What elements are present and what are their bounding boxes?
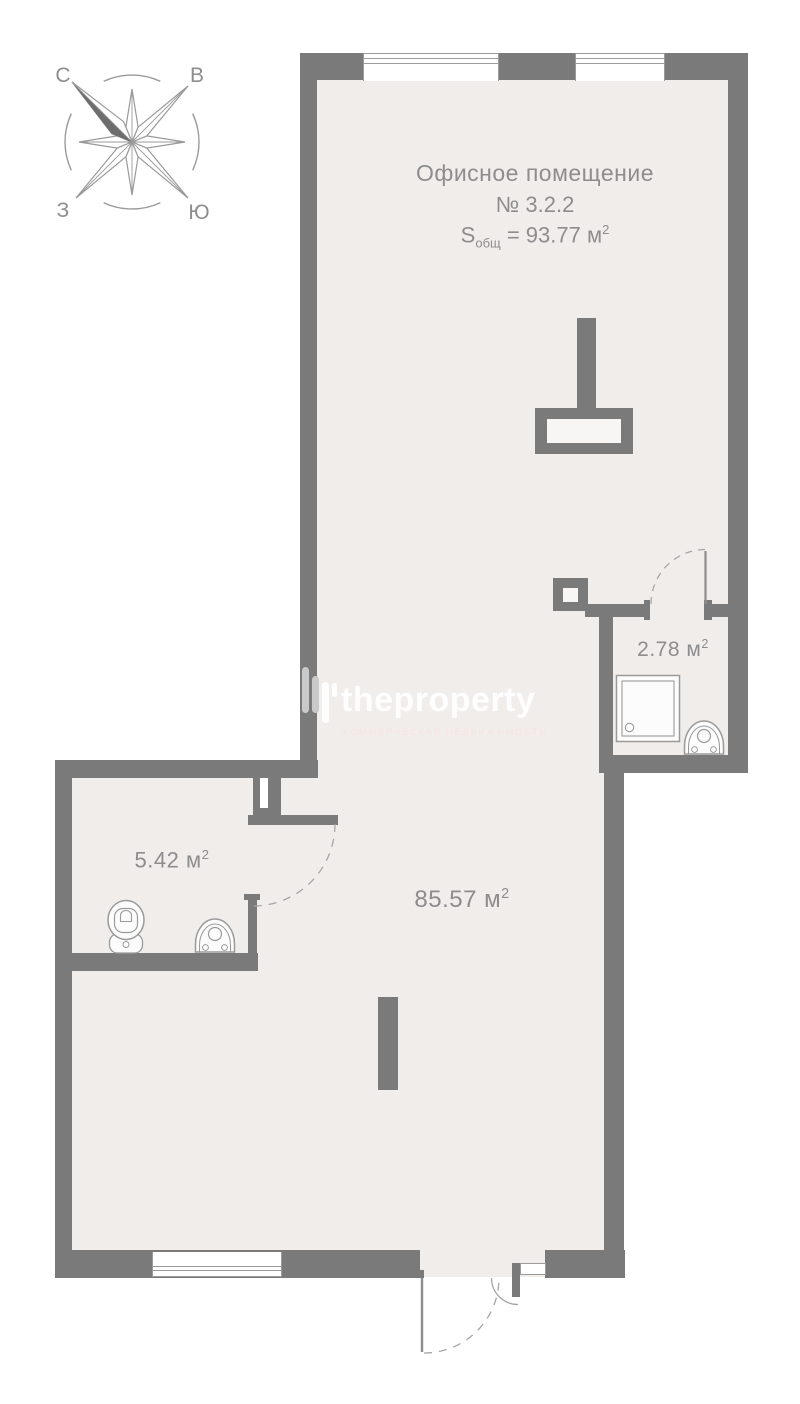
compass-spines [72,82,188,198]
wall-shower-room-top-b [712,604,728,617]
door-swing-entrance-main [424,1278,499,1353]
pilaster [378,997,398,1090]
compass-label-west: З [57,199,70,222]
room-label-shower: 2.78 м2 [613,637,733,662]
floorplan-canvas: С В З Ю [0,0,800,1404]
shaft-hollow-rect [535,408,633,454]
plan-total-area: Sобщ = 93.77 м2 [385,222,685,251]
compass-label-south: Ю [188,201,209,224]
wall-shower-room-left [599,604,613,755]
room-label-wc-sup: 2 [202,847,210,862]
plan-number: № 3.2.2 [385,192,685,218]
room-label-wc: 5.42 м2 [110,847,234,873]
logo-apostrophe [332,683,337,697]
area-s-sup: 2 [602,222,609,237]
wall-wc-bottom [55,953,258,971]
plan-title: Офисное помещение № 3.2.2 Sобщ = 93.77 м… [385,160,685,251]
room-label-main-value: 85.57 м [414,886,501,913]
wall-lower-top [55,760,318,778]
compass-north-needle-fill [72,82,132,142]
plan-title-line1: Офисное помещение [385,160,685,187]
logo-bar-1 [302,667,309,713]
window-bottom [152,1252,282,1277]
watermark-tagline: КОММЕРЧЕСКАЯ НЕДВИЖИМОСТЬ [343,727,548,738]
compass-star [72,82,188,198]
logo-bar-2 [312,676,319,713]
wall-wc-door-top [248,815,338,825]
floor-lower-area [63,768,608,1268]
wall-bottom-right [545,1250,625,1278]
wall-lower-right [604,755,624,1278]
column-hollow [553,578,588,611]
window-top-left [363,53,499,81]
room-label-main-sup: 2 [501,886,510,902]
door-stop-entrance [512,1263,520,1297]
wall-right-outer [728,53,748,773]
compass-label-north: С [55,64,70,87]
window-top-right [575,53,665,81]
wall-left-outer [55,760,72,1278]
logo-bar-3 [322,682,329,723]
room-label-shower-value: 2.78 м [637,638,701,661]
room-label-wc-value: 5.42 м [135,847,202,872]
area-s: S [461,222,476,247]
area-s-value: = 93.77 м [501,222,602,247]
room-label-shower-sup: 2 [701,637,709,651]
interior-wall-stub [577,318,596,412]
door-frame-shower-right [704,600,712,620]
compass-label-east: В [190,64,204,87]
window-sidelight-entrance [520,1263,546,1275]
watermark-brand: theproperty [341,681,535,720]
area-s-sub: общ [475,236,500,251]
door-frame-shower-left [644,600,650,620]
room-label-main: 85.57 м2 [400,886,524,914]
compass-rose: С В З Ю [42,52,222,232]
wall-shower-room-top-a [585,604,650,617]
compass-circle-arcs [65,75,199,209]
wc-niche-slot [260,778,268,808]
door-frame-entrance-left [412,1270,424,1278]
